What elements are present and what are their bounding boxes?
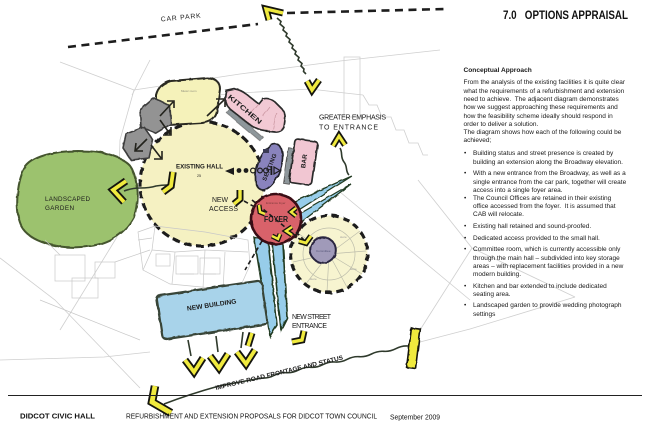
svg-text:Music room: Music room [181,89,197,93]
svg-text:CAR PARK: CAR PARK [161,13,202,24]
svg-text:7.0 OPTIONS APPRAISAL: 7.0 OPTIONS APPRAISAL [503,8,628,22]
svg-text:Committee: Committee [316,249,331,253]
svg-text:September 2009: September 2009 [390,413,440,422]
svg-text:IMPROVE ROAD FRONTAGE AND STAT: IMPROVE ROAD FRONTAGE AND STATUS [215,355,344,392]
svg-text:TO ENTRANCE: TO ENTRANCE [319,125,378,132]
svg-text:ENTRANCE: ENTRANCE [292,323,327,330]
svg-text:GARDEN: GARDEN [45,205,74,212]
svg-text:LANDSCAPED: LANDSCAPED [45,196,90,203]
svg-text:25: 25 [197,174,201,178]
svg-text:Entrance foyer: Entrance foyer [266,201,286,205]
svg-text:NEW: NEW [212,197,228,204]
svg-text:FOYER: FOYER [264,215,288,224]
svg-text:store: store [340,235,347,239]
svg-text:NEW STREET: NEW STREET [292,314,332,321]
svg-text:ACCESS: ACCESS [209,206,238,213]
svg-text:store: store [350,267,357,271]
svg-text:EXISTING HALL: EXISTING HALL [176,164,223,171]
svg-text:store: store [310,277,317,281]
svg-text:GREATER EMPHASIS: GREATER EMPHASIS [319,115,386,122]
svg-text:REFURBISHMENT AND EXTENSION PR: REFURBISHMENT AND EXTENSION PROPOSALS FO… [126,412,377,421]
svg-text:DIDCOT CIVIC HALL: DIDCOT CIVIC HALL [20,412,95,421]
